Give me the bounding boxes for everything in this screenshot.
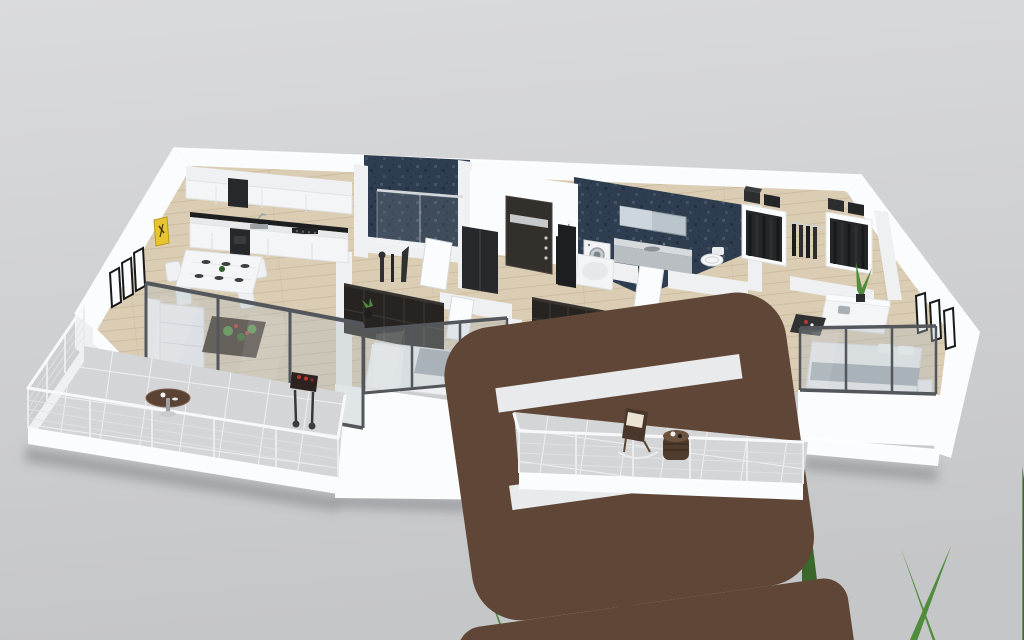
wicker-table <box>663 430 689 460</box>
centerpiece <box>219 266 225 272</box>
master-window <box>800 326 936 394</box>
entry-door <box>506 196 552 274</box>
picture-frame <box>134 248 145 291</box>
range-hood <box>228 178 248 208</box>
dining-table <box>176 250 262 294</box>
master-parapet <box>798 390 940 446</box>
sink-basin <box>644 247 660 252</box>
sink <box>250 224 268 229</box>
closet-unit <box>742 186 786 266</box>
picture-frame <box>110 268 121 307</box>
pot-decor <box>364 310 372 318</box>
floor-plan-3d <box>0 0 1024 640</box>
yellow-wall-art <box>154 217 169 246</box>
picture-frame <box>944 308 955 349</box>
picture-frame <box>122 258 133 299</box>
bathroom-cabinet <box>558 224 576 288</box>
shower-glass <box>377 191 420 248</box>
shower-room-door <box>420 238 452 290</box>
bathtub <box>576 254 614 290</box>
screenshot <box>0 0 1024 640</box>
